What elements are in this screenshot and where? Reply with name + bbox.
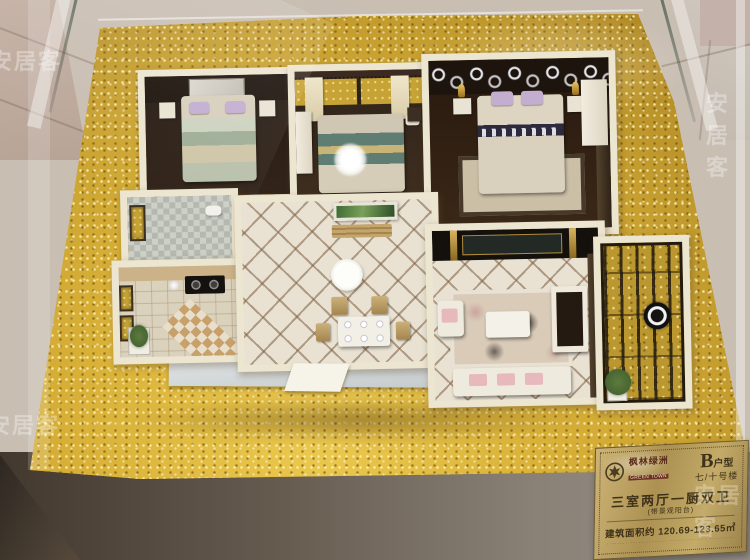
room-master-bedroom	[428, 57, 612, 231]
recessed-panel	[462, 233, 562, 255]
gold-lamp	[458, 84, 465, 97]
bedding-motif	[482, 128, 560, 138]
pillow	[521, 91, 543, 105]
dining-chair	[371, 296, 387, 314]
pillow	[491, 91, 513, 105]
landscape-picture	[333, 202, 397, 221]
room-kitchen	[119, 265, 243, 358]
cushion	[497, 373, 515, 385]
nightstand	[407, 107, 421, 121]
glass-highlight	[736, 0, 745, 450]
nightstand	[453, 98, 471, 114]
dining-chair	[396, 321, 410, 339]
gold-trim	[569, 228, 577, 258]
unit-info-plaque: 枫林绿洲 GREEN TOWN B户型 七/十号楼 三室两厅一厨双卫 (带景观阳…	[593, 440, 749, 560]
brand-name-en: GREEN TOWN	[628, 474, 668, 481]
media-wall	[432, 227, 599, 260]
brand-block: 枫林绿洲 GREEN TOWN	[628, 456, 678, 484]
building-number: 七/十号楼	[695, 471, 739, 482]
rattan-sideboard	[332, 224, 392, 238]
unit-type-suffix: 户型	[713, 458, 733, 470]
dining-chair	[316, 323, 330, 341]
unit-type-letter: B	[700, 450, 714, 473]
curtain	[596, 145, 612, 227]
kettle	[169, 280, 179, 290]
wardrobe	[295, 111, 312, 173]
dining-table	[338, 316, 391, 347]
cushion	[525, 373, 543, 385]
window-gold-backlight	[119, 285, 134, 311]
unit-type-block: B户型 七/十号楼	[695, 449, 739, 482]
window-mullion	[357, 76, 362, 104]
coffee-table	[486, 311, 531, 338]
gold-lamp	[572, 82, 579, 95]
room-bedroom-2	[295, 69, 428, 210]
bed	[477, 94, 565, 194]
room-balcony	[600, 242, 685, 404]
window-gold-backlight	[129, 205, 146, 241]
cushion	[469, 374, 487, 386]
wardrobe	[581, 79, 608, 146]
cooktop	[185, 275, 225, 294]
cushion	[441, 308, 457, 322]
brand-name-cn: 枫林绿洲	[629, 456, 679, 468]
tv-cabinet	[551, 286, 588, 353]
showroom-photo: 枫林绿洲 GREEN TOWN B户型 七/十号楼 三室两厅一厨双卫 (带景观阳…	[0, 0, 750, 560]
checker-tile-wall	[162, 298, 242, 357]
plaque-header: 枫林绿洲 GREEN TOWN B户型 七/十号楼	[604, 449, 738, 487]
entry-door-panel	[284, 363, 349, 392]
tv-cabinet-panel	[556, 292, 583, 347]
room-living	[432, 227, 602, 400]
dining-chair	[331, 297, 347, 315]
gold-trim	[450, 230, 458, 260]
brand-emblem-icon	[604, 461, 624, 482]
